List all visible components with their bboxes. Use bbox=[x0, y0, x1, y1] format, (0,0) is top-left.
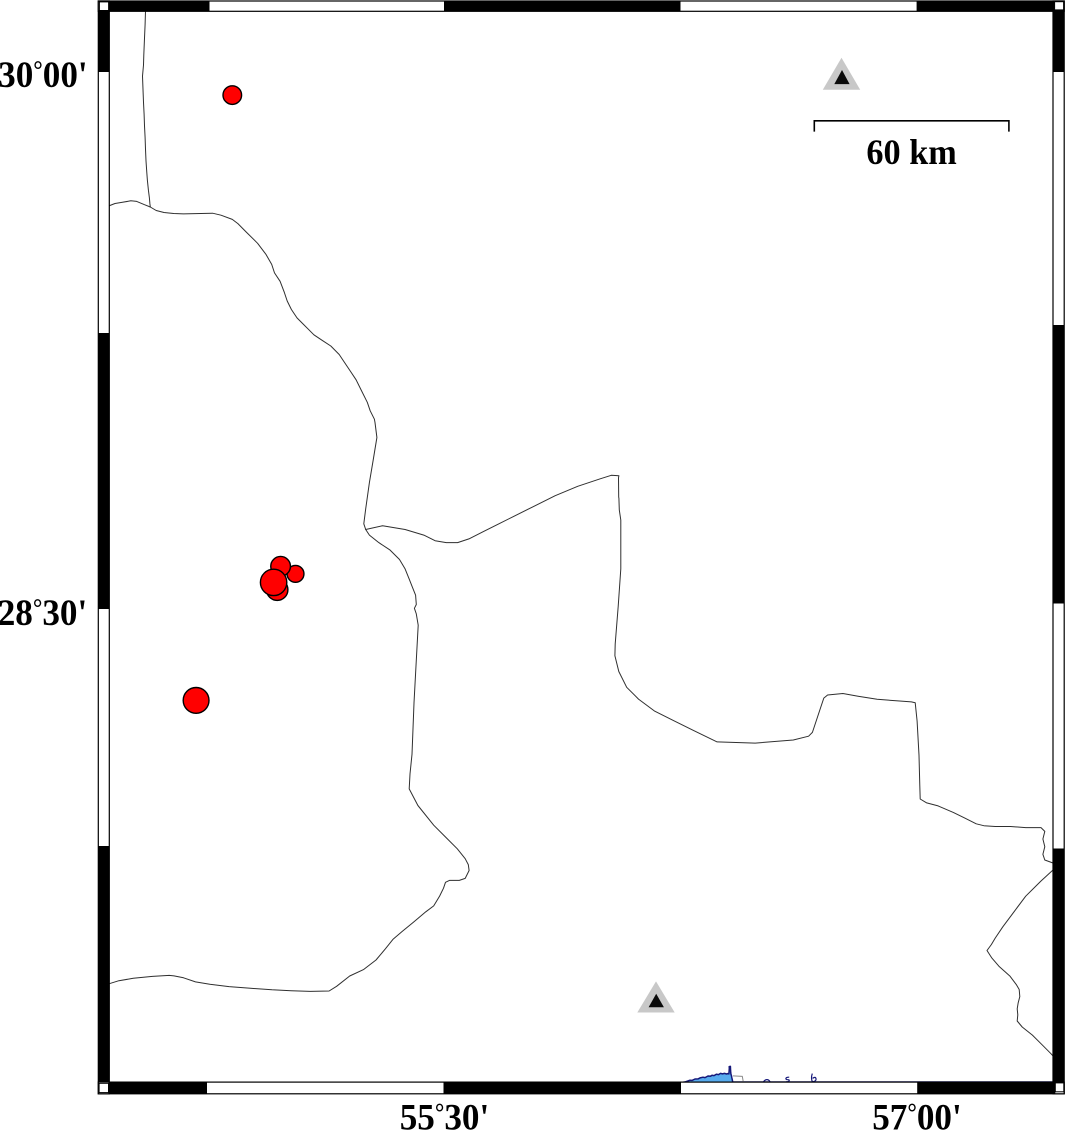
svg-text:30°00': 30°00' bbox=[0, 54, 88, 95]
svg-text:57°00': 57°00' bbox=[872, 1097, 962, 1131]
svg-text:55°30': 55°30' bbox=[400, 1097, 490, 1131]
svg-text:28°30': 28°30' bbox=[0, 592, 87, 633]
svg-text:60 km: 60 km bbox=[866, 132, 956, 172]
